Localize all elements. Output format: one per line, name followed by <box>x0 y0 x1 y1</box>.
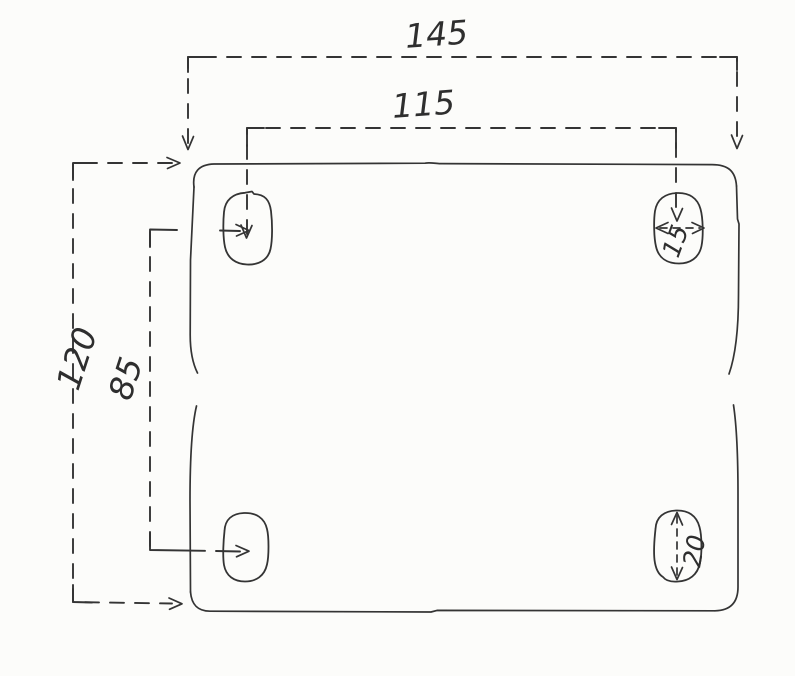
dim-85-corner-bottom <box>150 533 205 551</box>
dim-120-corner-bottom <box>73 585 92 603</box>
dim-145-corner-left <box>188 57 206 72</box>
dim-85-corner-top <box>150 230 177 248</box>
plate-edge-left-lower <box>190 406 197 592</box>
dim-145-corner-right <box>720 57 737 70</box>
dim-145-line <box>188 57 737 143</box>
dim-20-label: 20 <box>677 533 711 569</box>
slotted-holes <box>223 192 702 582</box>
dimension-20: 20 <box>672 513 712 580</box>
dim-120-corner-top <box>73 163 90 180</box>
dim-115-corner-right <box>659 128 676 148</box>
plate-edge-right-upper <box>729 186 739 374</box>
dim-115-label: 115 <box>391 83 457 126</box>
dim-120-label: 120 <box>49 323 106 395</box>
dim-115-arrowhead-right <box>672 208 683 221</box>
dim-85-label: 85 <box>101 352 151 404</box>
plate-edge-left-upper <box>190 187 197 373</box>
sketch-sheet: 145 115 120 85 <box>0 0 795 676</box>
plate-edge-right-lower <box>715 405 738 611</box>
dim-145-arrowhead-right <box>732 135 743 149</box>
dimension-145: 145 <box>183 13 743 150</box>
dim-85-arm-top <box>220 231 240 232</box>
plate-edge-bottom <box>191 592 716 612</box>
slot-bottom-left <box>223 513 268 582</box>
dim-85-arm-bottom <box>216 551 240 552</box>
plate-edge-top <box>194 163 737 187</box>
plate-drawing-canvas: 145 115 120 85 <box>0 0 795 676</box>
dim-145-label: 145 <box>404 13 470 56</box>
dimension-85: 85 <box>101 225 249 557</box>
dimension-115: 115 <box>241 83 683 238</box>
dim-115-line <box>247 128 676 234</box>
dim-115-corner-left <box>247 128 264 146</box>
